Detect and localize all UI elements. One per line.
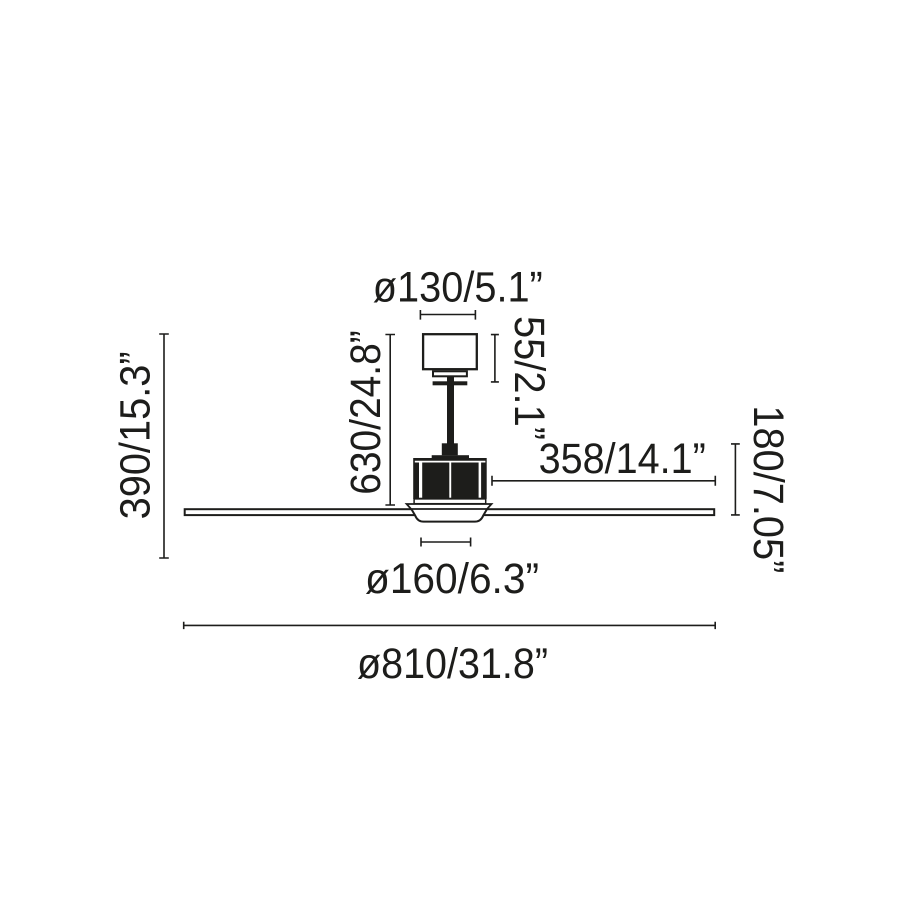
svg-text:630/24.8”: 630/24.8” <box>343 330 390 495</box>
svg-text:390/15.3”: 390/15.3” <box>112 351 159 519</box>
svg-text:ø130/5.1”: ø130/5.1” <box>373 265 543 312</box>
svg-text:358/14.1”: 358/14.1” <box>539 436 706 483</box>
svg-text:ø810/31.8”: ø810/31.8” <box>357 641 548 688</box>
svg-text:ø160/6.3”: ø160/6.3” <box>365 556 539 603</box>
svg-text:55/2.1”: 55/2.1” <box>505 316 552 440</box>
svg-text:180/7.05”: 180/7.05” <box>744 405 791 573</box>
